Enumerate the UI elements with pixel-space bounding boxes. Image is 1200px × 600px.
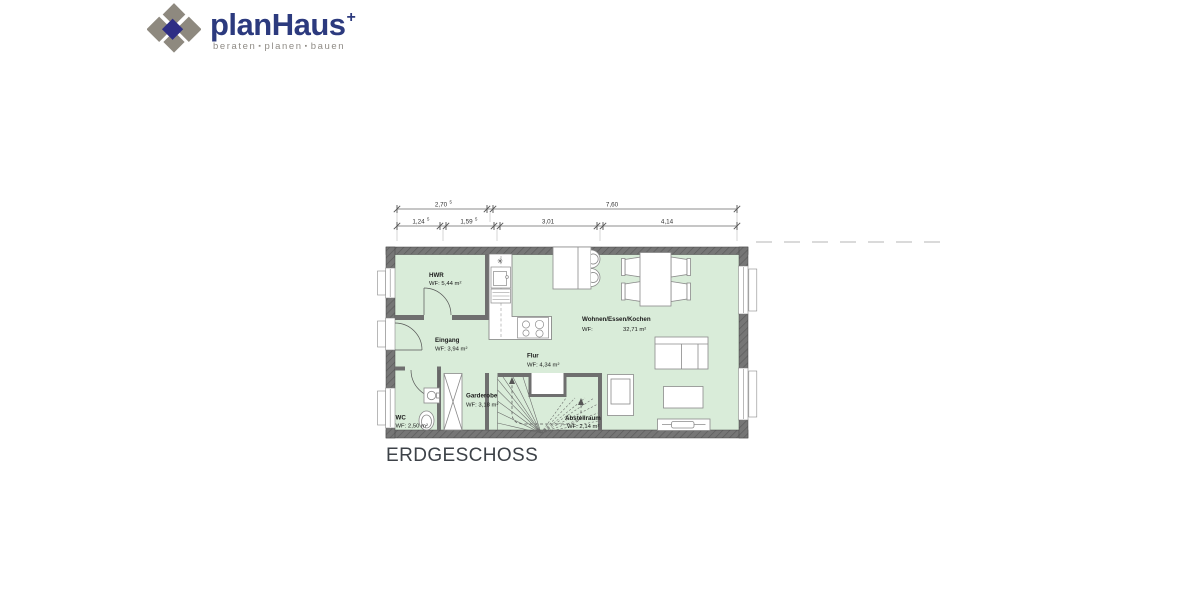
bar-table bbox=[553, 247, 600, 289]
room-area-abstellraum: WF: 2,14 m² bbox=[567, 424, 599, 430]
logo: planHaus+ beraten▪planen▪bauen bbox=[147, 3, 356, 57]
dim-270-sup: 5 bbox=[450, 200, 453, 205]
tagline-word: beraten bbox=[213, 41, 256, 52]
room-area-wohnen-label: WF: bbox=[582, 327, 593, 333]
tagline-word: planen bbox=[265, 41, 303, 52]
brand-plus: + bbox=[347, 9, 356, 26]
room-label-abstellraum: Abstellraum bbox=[565, 415, 601, 422]
tagline-bullet: ▪ bbox=[305, 43, 309, 50]
page: planHaus+ beraten▪planen▪bauen bbox=[0, 0, 1200, 600]
planhaus-diamond-icon bbox=[147, 3, 201, 57]
dim-124-sup: 5 bbox=[427, 217, 430, 222]
dim-159-sup: 5 bbox=[475, 217, 478, 222]
floor-plan: 2,70 5 7,60 1,24 5 1,59 5 3,01 4,14 bbox=[370, 190, 970, 475]
room-label-hwr: HWR bbox=[429, 272, 444, 279]
dim-414: 4,14 bbox=[661, 219, 674, 226]
tagline-bullet: ▪ bbox=[258, 43, 262, 50]
tv-board bbox=[658, 419, 711, 431]
room-area-wc: WF: 2,50 m² bbox=[396, 424, 428, 430]
dim-760: 7,60 bbox=[606, 202, 619, 209]
dim-301: 3,01 bbox=[542, 219, 555, 226]
wardrobe bbox=[444, 374, 462, 431]
stove bbox=[518, 318, 549, 339]
room-label-garderobe: Garderobe bbox=[466, 393, 498, 400]
stairwell-void bbox=[532, 373, 564, 394]
room-area-garderobe: WF: 3,18 m² bbox=[466, 403, 498, 409]
sofa bbox=[655, 337, 708, 369]
dim-270: 2,70 bbox=[435, 202, 448, 209]
room-area-hwr: WF: 5,44 m² bbox=[429, 281, 461, 287]
tagline-word: bauen bbox=[311, 41, 345, 52]
room-area-eingang: WF: 3,94 m² bbox=[435, 347, 467, 353]
logo-tagline: beraten▪planen▪bauen bbox=[213, 41, 356, 52]
plan-title: ERDGESCHOSS bbox=[386, 445, 538, 467]
room-label-flur: Flur bbox=[527, 353, 539, 360]
room-label-eingang: Eingang bbox=[435, 337, 460, 344]
kitchen-marker-icon: ✳ bbox=[497, 258, 503, 266]
room-label-wohnen: Wohnen/Essen/Kochen bbox=[582, 316, 651, 323]
logo-text: planHaus+ beraten▪planen▪bauen bbox=[210, 3, 356, 52]
brand-name: planHaus bbox=[210, 7, 346, 42]
dimension-chains bbox=[397, 209, 737, 241]
room-area-wohnen-value: 32,71 m² bbox=[623, 327, 646, 333]
armchair bbox=[608, 375, 634, 416]
room-label-wc: WC bbox=[396, 415, 407, 422]
dim-124: 1,24 bbox=[412, 219, 425, 226]
room-area-flur: WF: 4,34 m² bbox=[527, 363, 559, 369]
coffee-table bbox=[664, 387, 704, 409]
dim-159: 1,59 bbox=[460, 219, 473, 226]
dimension-labels: 2,70 5 7,60 1,24 5 1,59 5 3,01 4,14 bbox=[412, 200, 673, 226]
